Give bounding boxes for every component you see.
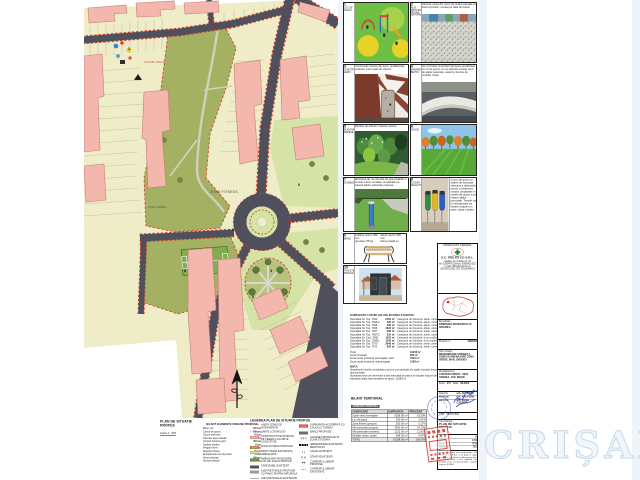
panel-label: TOALETE PUBLICE bbox=[344, 270, 354, 275]
svg-text:1: 1 bbox=[128, 47, 130, 51]
panel-caption: Plantari de arbusti si plante perene bbox=[355, 125, 408, 128]
panel-constructii-lemn: 3CONSTRUCTII LEMN Constructie usoara din… bbox=[343, 64, 409, 123]
scan-seam bbox=[338, 0, 343, 418]
legend-title: LEGENDA PLAN DE SITUATIE PROPUS bbox=[250, 419, 346, 423]
bilant-subtitle: VARIANTA PROPUSA bbox=[351, 405, 380, 408]
photo-concrete-bench bbox=[422, 82, 476, 122]
proiectant-label: PROIECTANT GENERAL bbox=[438, 245, 477, 248]
panel-label: PLANTARI PERENE bbox=[344, 129, 354, 134]
legend-swatch-limit bbox=[250, 425, 259, 426]
scan-seam bbox=[632, 0, 640, 480]
svg-text:4: 4 bbox=[252, 295, 254, 299]
plan-title: PLAN DE SITUATIE PROPUS bbox=[160, 420, 202, 428]
panel-caption: Se vor folosi ca borduri din beton prefa… bbox=[422, 65, 476, 77]
scanned-plan-sheet: ZONA FITNESS LOC DE JOACA ZONA VERDE 1 3… bbox=[0, 0, 640, 480]
panel-label: CONSTRUCTII LEMN bbox=[344, 69, 354, 74]
legend-swatch-benches bbox=[299, 432, 308, 435]
blue-signature bbox=[452, 385, 478, 411]
titlu-proiect: REGENERARE URBANA A ZONEI SI AMENAJARE Z… bbox=[439, 353, 477, 361]
zona-fitness-label: ZONA FITNESS bbox=[210, 190, 239, 194]
bench-specs-left: inaltime sezut: 450 mm greutate: 85 kg s… bbox=[355, 234, 381, 243]
legend-swatch-alley-proposed bbox=[250, 471, 259, 474]
panel-gazon: 6GAZON bbox=[410, 124, 477, 176]
legend-swatch-lot-lines bbox=[250, 432, 259, 433]
panel-label: CISMELE bbox=[344, 182, 354, 184]
photo-playground bbox=[355, 3, 408, 62]
site-plan-map: ZONA FITNESS LOC DE JOACA ZONA VERDE 1 3… bbox=[84, 0, 338, 418]
legend-swatch-green-existing bbox=[250, 451, 259, 454]
svg-text:3: 3 bbox=[270, 269, 272, 273]
bench-specs-right: latime sezut: 530 mm latime totala cu br… bbox=[381, 234, 407, 243]
panel-label: BANCI bbox=[344, 238, 354, 240]
panel-cismele: 7CISMELE Montarea de noi cismele de apa … bbox=[343, 177, 409, 232]
legend-swatch-rubber bbox=[299, 425, 308, 428]
panel-toalete-publice: 10TOALETE PUBLICE bbox=[343, 265, 407, 304]
photo-drinking-fountain bbox=[355, 189, 408, 231]
legend-swatch-canal: [ ] bbox=[299, 451, 308, 454]
panel-parapeti-beton: 4PARAPETI BETON Se vor folosi ca borduri… bbox=[410, 64, 477, 123]
legend-swatch-lighting-existing: • • • bbox=[299, 469, 308, 472]
round-stamp bbox=[427, 396, 451, 420]
panel-caption: Constructie usoara din lemn, prefabricat… bbox=[355, 65, 408, 71]
loc-joaca-label: LOC DE JOACA bbox=[144, 60, 165, 64]
amplasament: CARTIER EUROPA - MUN. ORADEA, JUD. BIHOR bbox=[439, 373, 477, 379]
panel-label: LOC DE JOACA bbox=[344, 7, 354, 12]
beneficiar-name: PRIMARIA MUNICIPIULUI ORADEA bbox=[439, 323, 477, 329]
plan-scale: scara 1 : 500 bbox=[160, 432, 176, 436]
company-logo-icon bbox=[451, 248, 464, 257]
crisana-watermark: CRIȘANA bbox=[484, 423, 640, 467]
proiect-nr-label: Proiect nr.: bbox=[439, 341, 459, 344]
panel-caption: Cosuri de gunoi cu sistem de colectare s… bbox=[450, 178, 477, 212]
photo-wood-pergola bbox=[355, 74, 408, 122]
panel-label: ALEI PIETONALE PIATRA NATURALA bbox=[411, 7, 421, 17]
panel-plantari: 5PLANTARI PERENE Plantari de arbusti si … bbox=[343, 124, 409, 176]
faza-value: D.T. bbox=[447, 383, 451, 386]
svg-text:6: 6 bbox=[298, 183, 300, 187]
zona-verde-label: ZONA VERDE bbox=[148, 205, 166, 209]
photo-stone-carpet bbox=[422, 14, 476, 62]
panel-caption: Strat de uzura din covor de piatra natur… bbox=[422, 3, 476, 9]
panel-loc-de-joaca: 1LOC DE JOACA bbox=[343, 2, 409, 63]
legend-swatch-fitness bbox=[250, 446, 259, 449]
legend-swatch-landscape bbox=[250, 458, 259, 461]
romania-map-icon bbox=[439, 294, 477, 318]
map-legend: LEGENDA PLAN DE SITUATIE PROPUS LIMITA Z… bbox=[250, 419, 346, 479]
legend-left-column: LIMITA ZONEI DE INTERVENTIE LIMITE LOTUR… bbox=[250, 424, 298, 479]
company-details: Oradea, str. Artarilor nr. 20 tel: 0259/… bbox=[438, 260, 477, 270]
faza-label: Faza: bbox=[439, 383, 445, 386]
panel-label: PARAPETI BETON bbox=[411, 69, 421, 74]
legend-swatch-poles: O O bbox=[299, 456, 308, 459]
photo-garden bbox=[355, 131, 408, 175]
svg-text:9: 9 bbox=[232, 228, 234, 232]
proiect-nr: 208/2022 bbox=[459, 341, 478, 344]
photo-public-toilet bbox=[359, 268, 402, 301]
photo-bench-drawing bbox=[355, 243, 406, 263]
scan-seam bbox=[479, 0, 487, 480]
bilant-total-row: TOTAL10258.00 m²100.00% bbox=[351, 438, 427, 442]
legend-swatch-fence bbox=[299, 444, 308, 446]
panel-alei-piatra: 2ALEI PIETONALE PIATRA NATURALA Strat de… bbox=[410, 2, 477, 63]
legend-swatch-lighting-proposed: ◂•▸ bbox=[299, 461, 308, 464]
legend-swatch-access: ∨∨∨ bbox=[299, 437, 308, 440]
legend-right-column: SUPRAFATA ACOPERITA CU CAUCIUC TURNAT BA… bbox=[299, 424, 346, 479]
bilant-title: BILANT TERITORIAL bbox=[351, 397, 427, 401]
panel-banci: 9BANCI inaltime sezut: 450 mm greutate: … bbox=[343, 233, 407, 264]
photo-tree-alley bbox=[422, 125, 476, 175]
panel-caption: Montarea de noi cismele de apa potabila … bbox=[355, 178, 408, 187]
photo-recycling-bins bbox=[422, 178, 449, 231]
plan-title-block: PLAN DE SITUATIE PROPUS scara 1 : 500 bbox=[160, 420, 202, 478]
red-stamp bbox=[424, 425, 452, 462]
bilant-table: ZONIFICARE SUPRAFATA PROCENT Spatii verz… bbox=[351, 410, 427, 443]
panel-label: GAZON bbox=[411, 129, 421, 131]
panel-cosuri-selective: 8COSURI SELECTIVE Cosuri de gunoi cu sis… bbox=[410, 177, 477, 232]
legend-swatch-alley-existing bbox=[250, 478, 259, 479]
legend-swatch-road bbox=[250, 466, 259, 469]
svg-text:8: 8 bbox=[184, 269, 186, 273]
roundabout bbox=[234, 194, 291, 251]
bilant-teritorial: BILANT TERITORIAL VARIANTA PROPUSA ZONIF… bbox=[351, 397, 427, 459]
legend-swatch-buildings bbox=[250, 436, 259, 439]
panel-label: COSURI SELECTIVE bbox=[411, 182, 421, 187]
